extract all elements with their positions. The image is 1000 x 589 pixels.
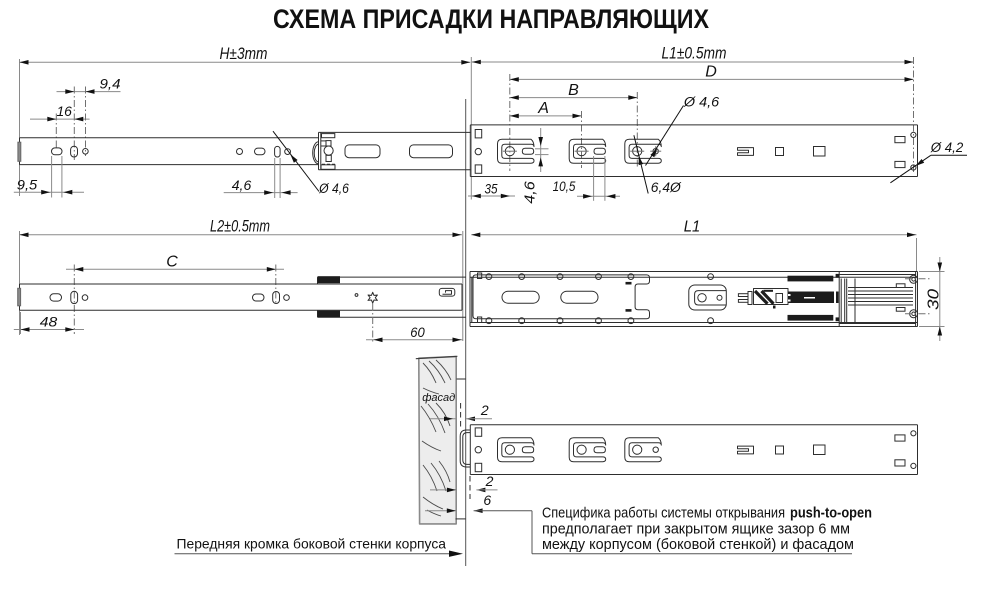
svg-text:Передняя кромка боковой стенки: Передняя кромка боковой стенки корпуса [177,536,447,551]
svg-text:C: C [166,254,178,271]
svg-text:предполагает при закрытом ящик: предполагает при закрытом ящике зазор 6 … [542,522,850,538]
svg-text:СХЕМА ПРИСАДКИ НАПРАВЛЯЮЩИХ: СХЕМА ПРИСАДКИ НАПРАВЛЯЮЩИХ [273,4,709,34]
svg-text:35: 35 [485,180,498,196]
svg-text:между корпусом (боковой стенко: между корпусом (боковой стенкой) и фасад… [542,537,854,553]
svg-text:48: 48 [40,314,58,330]
svg-text:A: A [537,100,549,117]
svg-text:6,4Ø: 6,4Ø [651,179,682,195]
svg-text:push-to-open: push-to-open [790,505,872,521]
svg-text:4,6: 4,6 [523,180,539,204]
svg-text:L1: L1 [684,218,701,235]
svg-text:60: 60 [410,324,425,340]
svg-text:9,4: 9,4 [100,76,121,92]
svg-text:фасад: фасад [422,392,455,404]
svg-text:Ø 4,6: Ø 4,6 [683,94,719,110]
svg-text:2: 2 [485,473,494,489]
svg-text:2: 2 [480,402,489,418]
svg-text:4,6: 4,6 [232,177,252,193]
svg-text:Ø 4,6: Ø 4,6 [318,180,349,196]
svg-text:Ø 4,2: Ø 4,2 [930,139,964,155]
svg-text:Специфика работы системы откры: Специфика работы системы открывания [542,505,785,521]
svg-text:H±3mm: H±3mm [220,45,268,63]
svg-text:B: B [568,82,579,99]
svg-text:L1±0.5mm: L1±0.5mm [662,45,727,63]
svg-text:30: 30 [926,289,943,310]
svg-text:L2±0.5mm: L2±0.5mm [210,217,270,235]
svg-text:D: D [705,64,717,81]
svg-text:10,5: 10,5 [553,178,576,194]
svg-text:6: 6 [483,492,491,508]
svg-text:9,5: 9,5 [17,176,38,192]
svg-text:16: 16 [56,103,72,119]
